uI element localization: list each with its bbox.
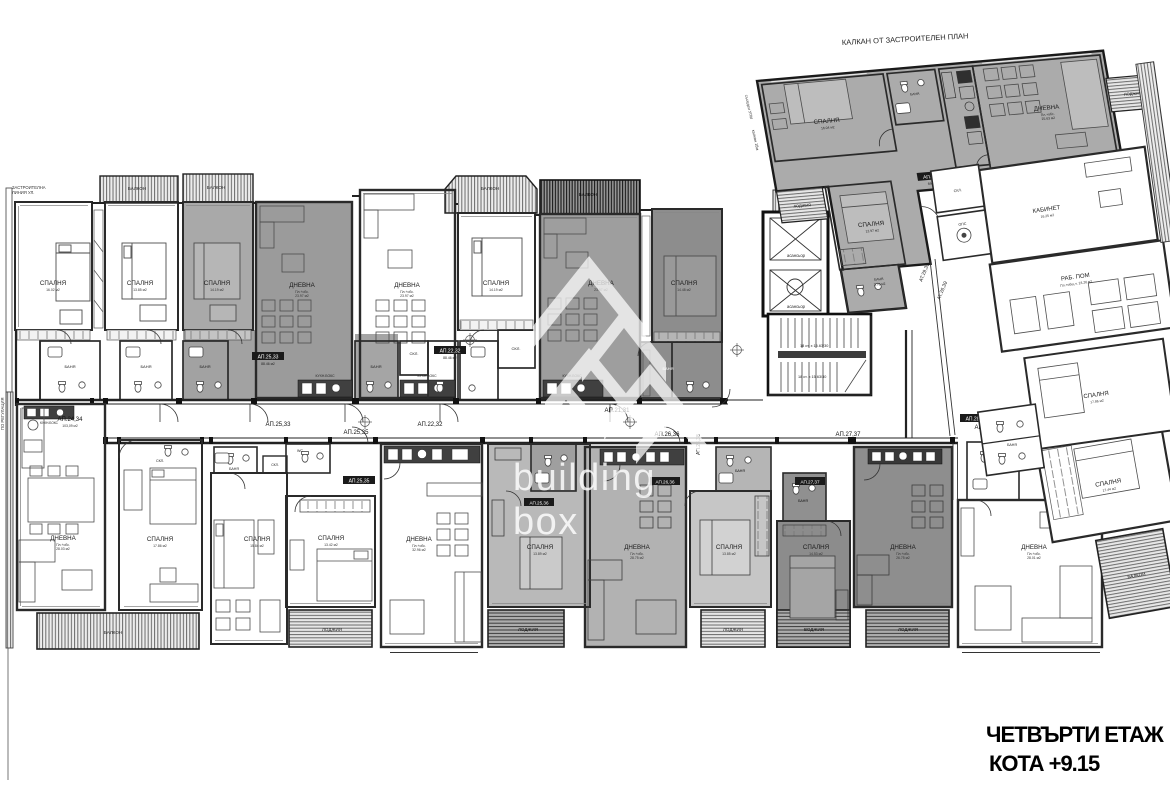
svg-text:СПАЛНЯ: СПАЛНЯ (147, 536, 173, 543)
svg-text:БАЛКОН: БАЛКОН (104, 630, 122, 635)
svg-text:СПАЛНЯ: СПАЛНЯ (127, 280, 153, 287)
svg-text:23.97 м2: 23.97 м2 (400, 294, 414, 298)
svg-text:БАЛКОН: БАЛКОН (128, 186, 146, 191)
svg-text:14.53 м2: 14.53 м2 (809, 552, 823, 556)
svg-text:КУХН.БОКС: КУХН.БОКС (40, 421, 59, 425)
svg-text:БАНЯ: БАНЯ (910, 92, 920, 97)
svg-text:АП.25,33: АП.25,33 (258, 355, 279, 361)
svg-text:СПАЛНЯ: СПАЛНЯ (318, 535, 344, 542)
svg-text:ЛОДЖИЯ: ЛОДЖИЯ (322, 627, 342, 632)
svg-text:15.84 м2: 15.84 м2 (250, 544, 264, 548)
svg-text:box: box (513, 501, 579, 543)
svg-text:СКЛ.: СКЛ. (512, 346, 521, 351)
svg-text:СКЛ.: СКЛ. (271, 463, 279, 467)
svg-text:ЧЕТВЪРТИ ЕТАЖ: ЧЕТВЪРТИ ЕТАЖ (986, 722, 1164, 747)
svg-text:АП.24,34: АП.24,34 (58, 417, 84, 423)
svg-text:WC: WC (297, 449, 303, 453)
svg-text:ДНЕВНА: ДНЕВНА (406, 536, 432, 543)
svg-text:ЛОДЖИЯ: ЛОДЖИЯ (518, 627, 538, 632)
svg-text:АП.25,35: АП.25,35 (344, 430, 370, 436)
svg-text:13.42 м2: 13.42 м2 (324, 543, 338, 547)
svg-text:КОТА +9.15: КОТА +9.15 (989, 751, 1100, 776)
svg-text:СКЛ.: СКЛ. (156, 459, 164, 463)
svg-text:28.03 м2: 28.03 м2 (56, 547, 70, 551)
svg-text:28.75 м2: 28.75 м2 (630, 556, 644, 560)
svg-text:АП.22,32: АП.22,32 (440, 349, 461, 355)
svg-text:ВОДЖИЯ: ВОДЖИЯ (804, 627, 824, 632)
svg-text:СПАЛНЯ: СПАЛНЯ (244, 536, 270, 543)
svg-text:ЛОДЖИЯ: ЛОДЖИЯ (723, 627, 743, 632)
svg-text:14.48 м2: 14.48 м2 (677, 288, 691, 292)
svg-text:ДНЕВНА: ДНЕВНА (289, 282, 315, 289)
svg-text:17.86 м2: 17.86 м2 (153, 544, 167, 548)
svg-text:БАНЯ: БАНЯ (735, 469, 745, 473)
svg-text:ДНЕВНА: ДНЕВНА (394, 282, 420, 289)
svg-text:26.75 м2: 26.75 м2 (896, 556, 910, 560)
svg-text:building: building (513, 457, 656, 499)
svg-text:АП.27,37: АП.27,37 (836, 432, 862, 438)
svg-text:СКЛ.: СКЛ. (410, 351, 419, 356)
svg-text:АП.25,35: АП.25,35 (349, 479, 370, 485)
svg-text:103,09 м2: 103,09 м2 (62, 424, 78, 428)
svg-text:18 ст. х 15.63/30: 18 ст. х 15.63/30 (798, 375, 826, 379)
svg-text:асансьор: асансьор (787, 304, 806, 309)
svg-text:БАНЯ: БАНЯ (371, 364, 382, 369)
svg-text:32.96 м2: 32.96 м2 (412, 548, 426, 552)
svg-text:АП.25,33: АП.25,33 (266, 422, 292, 428)
svg-text:ЛИНИЯ УЛ.: ЛИНИЯ УЛ. (12, 190, 34, 195)
svg-text:23.97 м2: 23.97 м2 (295, 294, 309, 298)
svg-text:ДНЕВНА: ДНЕВНА (1021, 544, 1047, 551)
svg-text:13.85 м2: 13.85 м2 (133, 288, 147, 292)
svg-text:28.01 м2: 28.01 м2 (1027, 556, 1041, 560)
svg-text:ДНЕВНА: ДНЕВНА (890, 544, 916, 551)
svg-text:СПАЛНЯ: СПАЛНЯ (527, 544, 553, 551)
svg-text:ПО РЕГУЛАЦИЯ: ПО РЕГУЛАЦИЯ (0, 398, 5, 430)
svg-text:АП.27,37: АП.27,37 (800, 480, 820, 485)
svg-text:АП.22,32: АП.22,32 (418, 422, 444, 428)
svg-text:14.19 м2: 14.19 м2 (210, 288, 224, 292)
svg-text:88.46 м2: 88.46 м2 (261, 362, 275, 366)
svg-text:БАНЯ: БАНЯ (141, 364, 152, 369)
svg-text:БАЛКОН: БАЛКОН (207, 185, 225, 190)
svg-text:БАНЯ: БАНЯ (200, 364, 211, 369)
svg-text:14.19 м2: 14.19 м2 (489, 288, 503, 292)
svg-text:СПАЛНЯ: СПАЛНЯ (716, 544, 742, 551)
svg-text:СПАЛНЯ: СПАЛНЯ (671, 280, 697, 287)
svg-text:БАНЯ: БАНЯ (798, 499, 808, 503)
svg-text:СПАЛНЯ: СПАЛНЯ (483, 280, 509, 287)
svg-text:КУХН.БОКС: КУХН.БОКС (315, 374, 335, 378)
svg-text:ДНЕВНА: ДНЕВНА (50, 535, 76, 542)
svg-text:асансьор: асансьор (787, 253, 806, 258)
svg-text:БАНЯ: БАНЯ (65, 364, 76, 369)
svg-text:БАЛКОН: БАЛКОН (579, 192, 597, 197)
svg-text:СПАЛНЯ: СПАЛНЯ (204, 280, 230, 287)
svg-text:18 ст. х 15.63/30: 18 ст. х 15.63/30 (800, 344, 828, 348)
svg-text:СПАЛНЯ: СПАЛНЯ (803, 544, 829, 551)
svg-text:БАНЯ: БАНЯ (229, 467, 239, 471)
svg-text:ЛОДЖИЯ: ЛОДЖИЯ (898, 627, 918, 632)
svg-text:БАНЯ: БАНЯ (1007, 443, 1017, 447)
svg-text:88.46 м2: 88.46 м2 (443, 356, 457, 360)
svg-text:13.89 м2: 13.89 м2 (533, 552, 547, 556)
svg-text:СПАЛНЯ: СПАЛНЯ (40, 280, 66, 287)
svg-text:16.02 м2: 16.02 м2 (46, 288, 60, 292)
svg-text:13.85 м2: 13.85 м2 (722, 552, 736, 556)
svg-text:БАЛКОН: БАЛКОН (481, 186, 499, 191)
svg-text:АП.26,36: АП.26,36 (655, 480, 675, 485)
svg-text:ДНЕВНА: ДНЕВНА (624, 544, 650, 551)
